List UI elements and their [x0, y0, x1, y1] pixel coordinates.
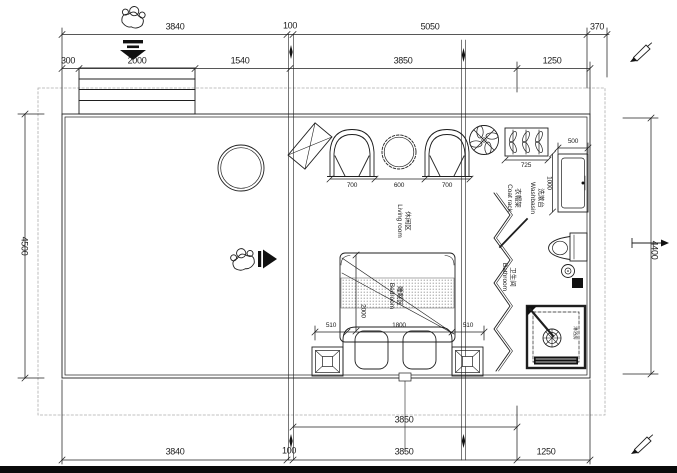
dim-top2-1540: 1540 — [231, 57, 250, 66]
floor-plan-canvas: 3840 100 5050 370 300 2000 1540 3850 125… — [0, 0, 677, 473]
bedroom-label-zh: 睡眠区 — [395, 283, 403, 309]
floor-plan-drawing — [0, 0, 677, 473]
entry-door-leaf — [288, 123, 332, 169]
dim-chair-left-700: 700 — [347, 183, 357, 190]
grid-axis-lines — [289, 34, 466, 460]
person-seated-icon — [229, 246, 257, 272]
round-coffee-table — [382, 135, 416, 169]
dim-chair-right-700: 700 — [442, 183, 452, 190]
dim-top-370: 370 — [590, 23, 604, 32]
floor-drain-box — [572, 278, 583, 288]
coat-rack-label-zh: 衣帽架 — [513, 184, 521, 212]
dim-bottom2-100: 100 — [282, 447, 296, 456]
marker-pen-bottom-icon — [631, 435, 653, 454]
living-room-label-zh: 休闲区 — [403, 204, 411, 238]
bottom-edge-bar — [0, 466, 677, 473]
pillow-right — [403, 331, 436, 369]
dim-bottom2-3850: 3850 — [395, 448, 414, 457]
bathroom-label-en: Bathroom — [500, 263, 508, 291]
washbasin — [558, 154, 588, 212]
dim-top-5050: 5050 — [421, 23, 440, 32]
washbasin-label-en: Washbasin — [528, 182, 536, 214]
shower-label: 淋浴房 — [572, 326, 578, 340]
marker-pen-top-icon — [630, 43, 652, 62]
site-boundary-dashed — [38, 88, 605, 415]
dim-left-4500: 4500 — [20, 237, 29, 256]
lounge-chair-right — [423, 130, 472, 177]
toilet-paper-holder — [562, 265, 575, 278]
washbasin-label-zh: 洗漱台 — [536, 182, 544, 214]
lounge-chair-left — [328, 130, 377, 177]
dimension-lines — [18, 28, 658, 464]
bedroom-label-en: Bedroom — [387, 283, 395, 309]
dim-top2-300: 300 — [61, 57, 75, 66]
dim-table-600: 600 — [394, 183, 404, 190]
living-room-label: 休闲区 Living room — [395, 204, 411, 238]
bathroom-label-zh: 卫生间 — [508, 263, 516, 291]
nightstand-right — [452, 347, 483, 376]
pillow-left — [355, 331, 388, 369]
dim-top-3840: 3840 — [166, 23, 185, 32]
toilet — [549, 233, 588, 261]
deck-round-table — [218, 145, 264, 191]
shower-label-zh: 淋浴房 — [572, 326, 578, 340]
dim-top-100: 100 — [283, 22, 297, 31]
wall-opening — [399, 373, 411, 381]
coat-rack-label-en: Coat rack — [505, 184, 513, 212]
dim-top2-1250: 1250 — [543, 57, 562, 66]
walk-arrow-right-icon — [258, 250, 277, 269]
dim-bed-1800: 1800 — [392, 323, 406, 330]
ceiling-fan-icon — [470, 126, 499, 155]
shower-drain — [543, 329, 561, 347]
dim-basin-1000: 1000 — [545, 176, 552, 190]
entry-steps — [79, 68, 195, 114]
dim-bed-right-510: 510 — [463, 323, 473, 330]
bed — [340, 253, 455, 374]
dim-top2-2000: 2000 — [128, 57, 147, 66]
dim-basin-500: 500 — [568, 139, 578, 146]
dim-bottom2-3840: 3840 — [166, 448, 185, 457]
dim-top2-3850: 3850 — [394, 57, 413, 66]
dim-bottom2-1250: 1250 — [537, 448, 556, 457]
living-room-label-en: Living room — [395, 204, 403, 238]
coat-rack — [505, 128, 548, 156]
dim-coatrack-725: 725 — [521, 163, 531, 170]
dim-bottom1-3850: 3850 — [395, 416, 414, 425]
dim-right-4400: 4400 — [650, 241, 659, 260]
nightstand-left — [312, 347, 343, 376]
coat-rack-label: 衣帽架 Coat rack — [505, 184, 521, 212]
person-entering-icon — [120, 5, 146, 30]
washbasin-label: 洗漱台 Washbasin — [528, 182, 544, 214]
dim-bed-2000: 2000 — [359, 304, 366, 318]
bathroom-label: 卫生间 Bathroom — [500, 263, 516, 291]
building-walls — [62, 114, 590, 378]
bedroom-label: 睡眠区 Bedroom — [387, 283, 403, 309]
dim-bed-left-510: 510 — [326, 323, 336, 330]
